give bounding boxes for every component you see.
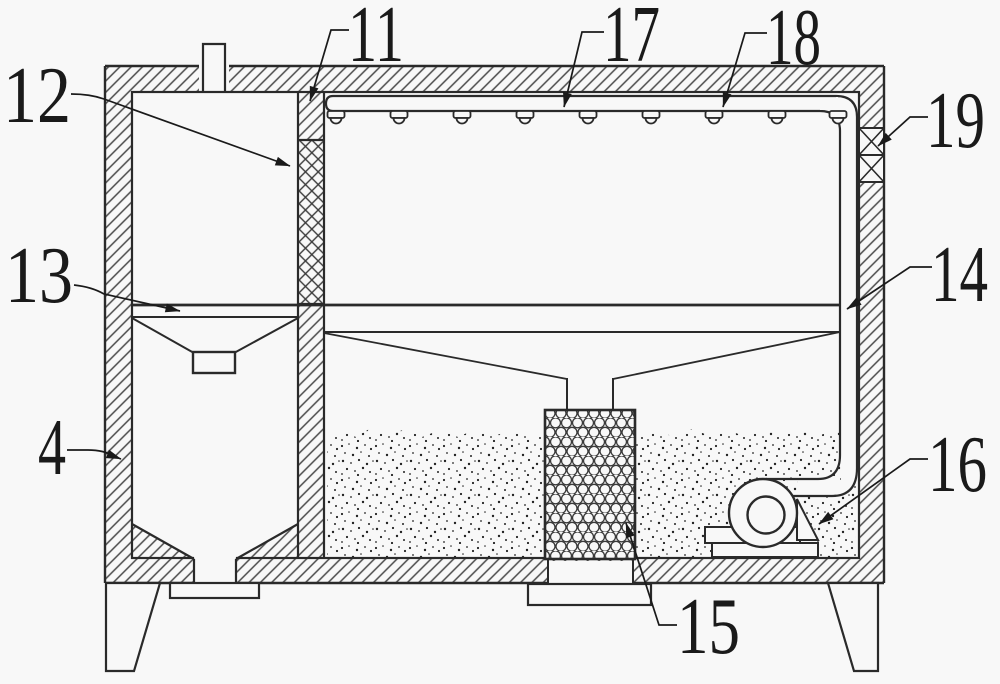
ref-label-4: 4 <box>38 404 66 492</box>
patent-figure: 12 11 17 18 19 13 14 4 16 15 <box>0 0 1000 684</box>
ref-label-17: 17 <box>603 0 660 79</box>
hopper-tray <box>170 583 259 598</box>
tank-left-wall <box>105 66 132 583</box>
wall-valve <box>859 128 884 182</box>
pump-impeller <box>748 497 785 534</box>
ref-label-18: 18 <box>766 0 821 82</box>
filter-column <box>545 410 635 559</box>
ref-label-11: 11 <box>348 0 404 79</box>
ref-label-14: 14 <box>931 231 988 319</box>
center-tray <box>528 584 651 605</box>
ref-label-19: 19 <box>926 77 985 165</box>
ref-label-13: 13 <box>5 232 73 320</box>
vent-pipe <box>199 44 229 92</box>
patent-figure-page: 12 11 17 18 19 13 14 4 16 15 <box>0 0 1000 684</box>
left-funnel-outlet <box>193 352 235 373</box>
ref-label-12: 12 <box>3 52 71 140</box>
ref-label-16: 16 <box>928 421 987 509</box>
spray-pipe <box>326 96 838 111</box>
ref-label-15: 15 <box>677 583 740 671</box>
